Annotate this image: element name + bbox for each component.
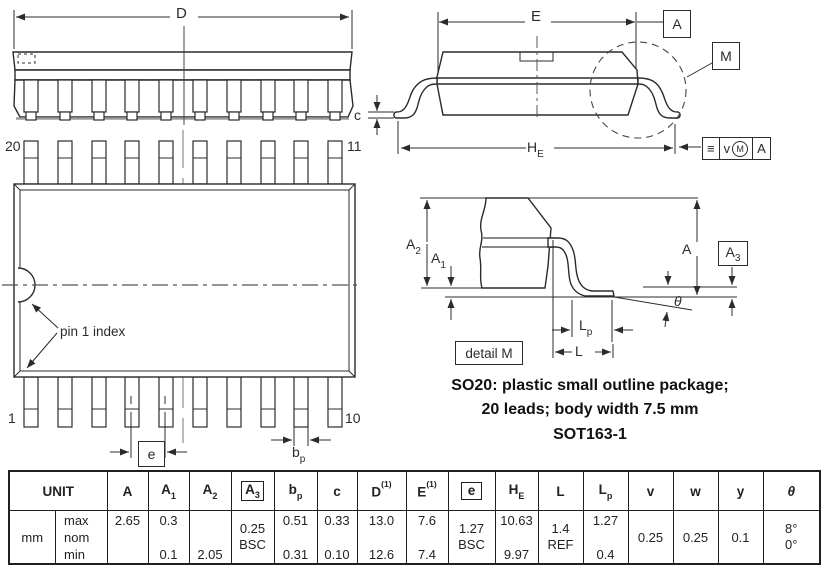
pin1-index-label: pin 1 index [60, 323, 125, 340]
dim-label-HE: HE [527, 139, 544, 162]
detail-m-reference-flag: M [712, 42, 740, 70]
package-title-line2: 20 leads; body width 7.5 mm [385, 398, 795, 422]
tolerance-value: vM [720, 138, 754, 159]
unit-cell: mm [9, 511, 55, 565]
pin-label-20: 20 [5, 138, 21, 155]
col-header-w: w [673, 471, 718, 511]
dimension-table: UNIT A A1 A2 A3 bp c D(1) E(1) e HE L Lp… [8, 470, 821, 565]
row-labels-cell: maxnommin [55, 511, 107, 565]
table-value-row: mm maxnommin 2.65 0.30.1 2.05 0.25BSC 0.… [9, 511, 820, 565]
col-header-A: A [107, 471, 148, 511]
datum-a-flag: A [663, 10, 691, 38]
value-HE: 10.639.97 [495, 511, 538, 565]
pin-label-10: 10 [345, 410, 361, 427]
tolerance-frame: ≡ vM A [702, 137, 771, 160]
tolerance-symmetry-symbol: ≡ [703, 138, 720, 159]
tolerance-datum: A [753, 138, 770, 159]
col-header-e: e [448, 471, 495, 511]
col-header-A3: A3 [231, 471, 274, 511]
dim-label-A: A [682, 241, 691, 258]
value-A1: 0.30.1 [148, 511, 189, 565]
table-header-row: UNIT A A1 A2 A3 bp c D(1) E(1) e HE L Lp… [9, 471, 820, 511]
value-Lp: 1.270.4 [583, 511, 628, 565]
col-header-bp: bp [274, 471, 317, 511]
pin-label-1: 1 [8, 410, 16, 427]
value-A2: 2.05 [189, 511, 231, 565]
col-header-c: c [317, 471, 357, 511]
dim-label-bp: bp [292, 444, 305, 467]
package-title: SO20: plastic small outline package; 20 … [385, 374, 795, 447]
dim-label-theta: θ [674, 293, 682, 310]
dim-label-L: L [575, 343, 583, 360]
value-bp: 0.510.31 [274, 511, 317, 565]
dim-label-A3-box: A3 [718, 241, 748, 266]
detail-m-caption: detail M [455, 341, 523, 365]
package-code: SOT163-1 [385, 423, 795, 447]
col-header-theta: θ [763, 471, 820, 511]
col-header-v: v [628, 471, 673, 511]
value-A3: 0.25BSC [231, 511, 274, 565]
dim-label-A2: A2 [406, 236, 421, 259]
col-header-y: y [718, 471, 763, 511]
dim-label-Lp: Lp [579, 317, 592, 340]
col-header-A2: A2 [189, 471, 231, 511]
col-header-D: D(1) [357, 471, 406, 511]
col-header-A1: A1 [148, 471, 189, 511]
value-v: 0.25 [628, 511, 673, 565]
value-E: 7.67.4 [406, 511, 448, 565]
col-header-unit: UNIT [9, 471, 107, 511]
dim-label-c: c [354, 107, 361, 124]
col-header-Lp: Lp [583, 471, 628, 511]
value-D: 13.012.6 [357, 511, 406, 565]
value-L: 1.4REF [538, 511, 583, 565]
material-condition-m-icon: M [732, 141, 748, 157]
pin-label-11: 11 [347, 138, 362, 155]
plan-view [2, 130, 358, 458]
front-view [13, 10, 353, 125]
dim-label-E: E [531, 8, 541, 25]
value-A: 2.65 [107, 511, 148, 565]
col-header-E: E(1) [406, 471, 448, 511]
value-theta: 8°0° [763, 511, 820, 565]
value-y: 0.1 [718, 511, 763, 565]
dim-label-A1: A1 [431, 250, 446, 273]
end-view [368, 12, 712, 154]
dim-label-D: D [176, 5, 187, 22]
dim-label-e-box: e [138, 441, 165, 467]
value-w: 0.25 [673, 511, 718, 565]
package-outline-drawing: D E A M c HE ≡ vM A 20 11 1 10 pin 1 ind… [0, 0, 828, 570]
col-header-L: L [538, 471, 583, 511]
value-c: 0.330.10 [317, 511, 357, 565]
package-title-line1: SO20: plastic small outline package; [385, 374, 795, 398]
col-header-HE: HE [495, 471, 538, 511]
value-e: 1.27BSC [448, 511, 495, 565]
